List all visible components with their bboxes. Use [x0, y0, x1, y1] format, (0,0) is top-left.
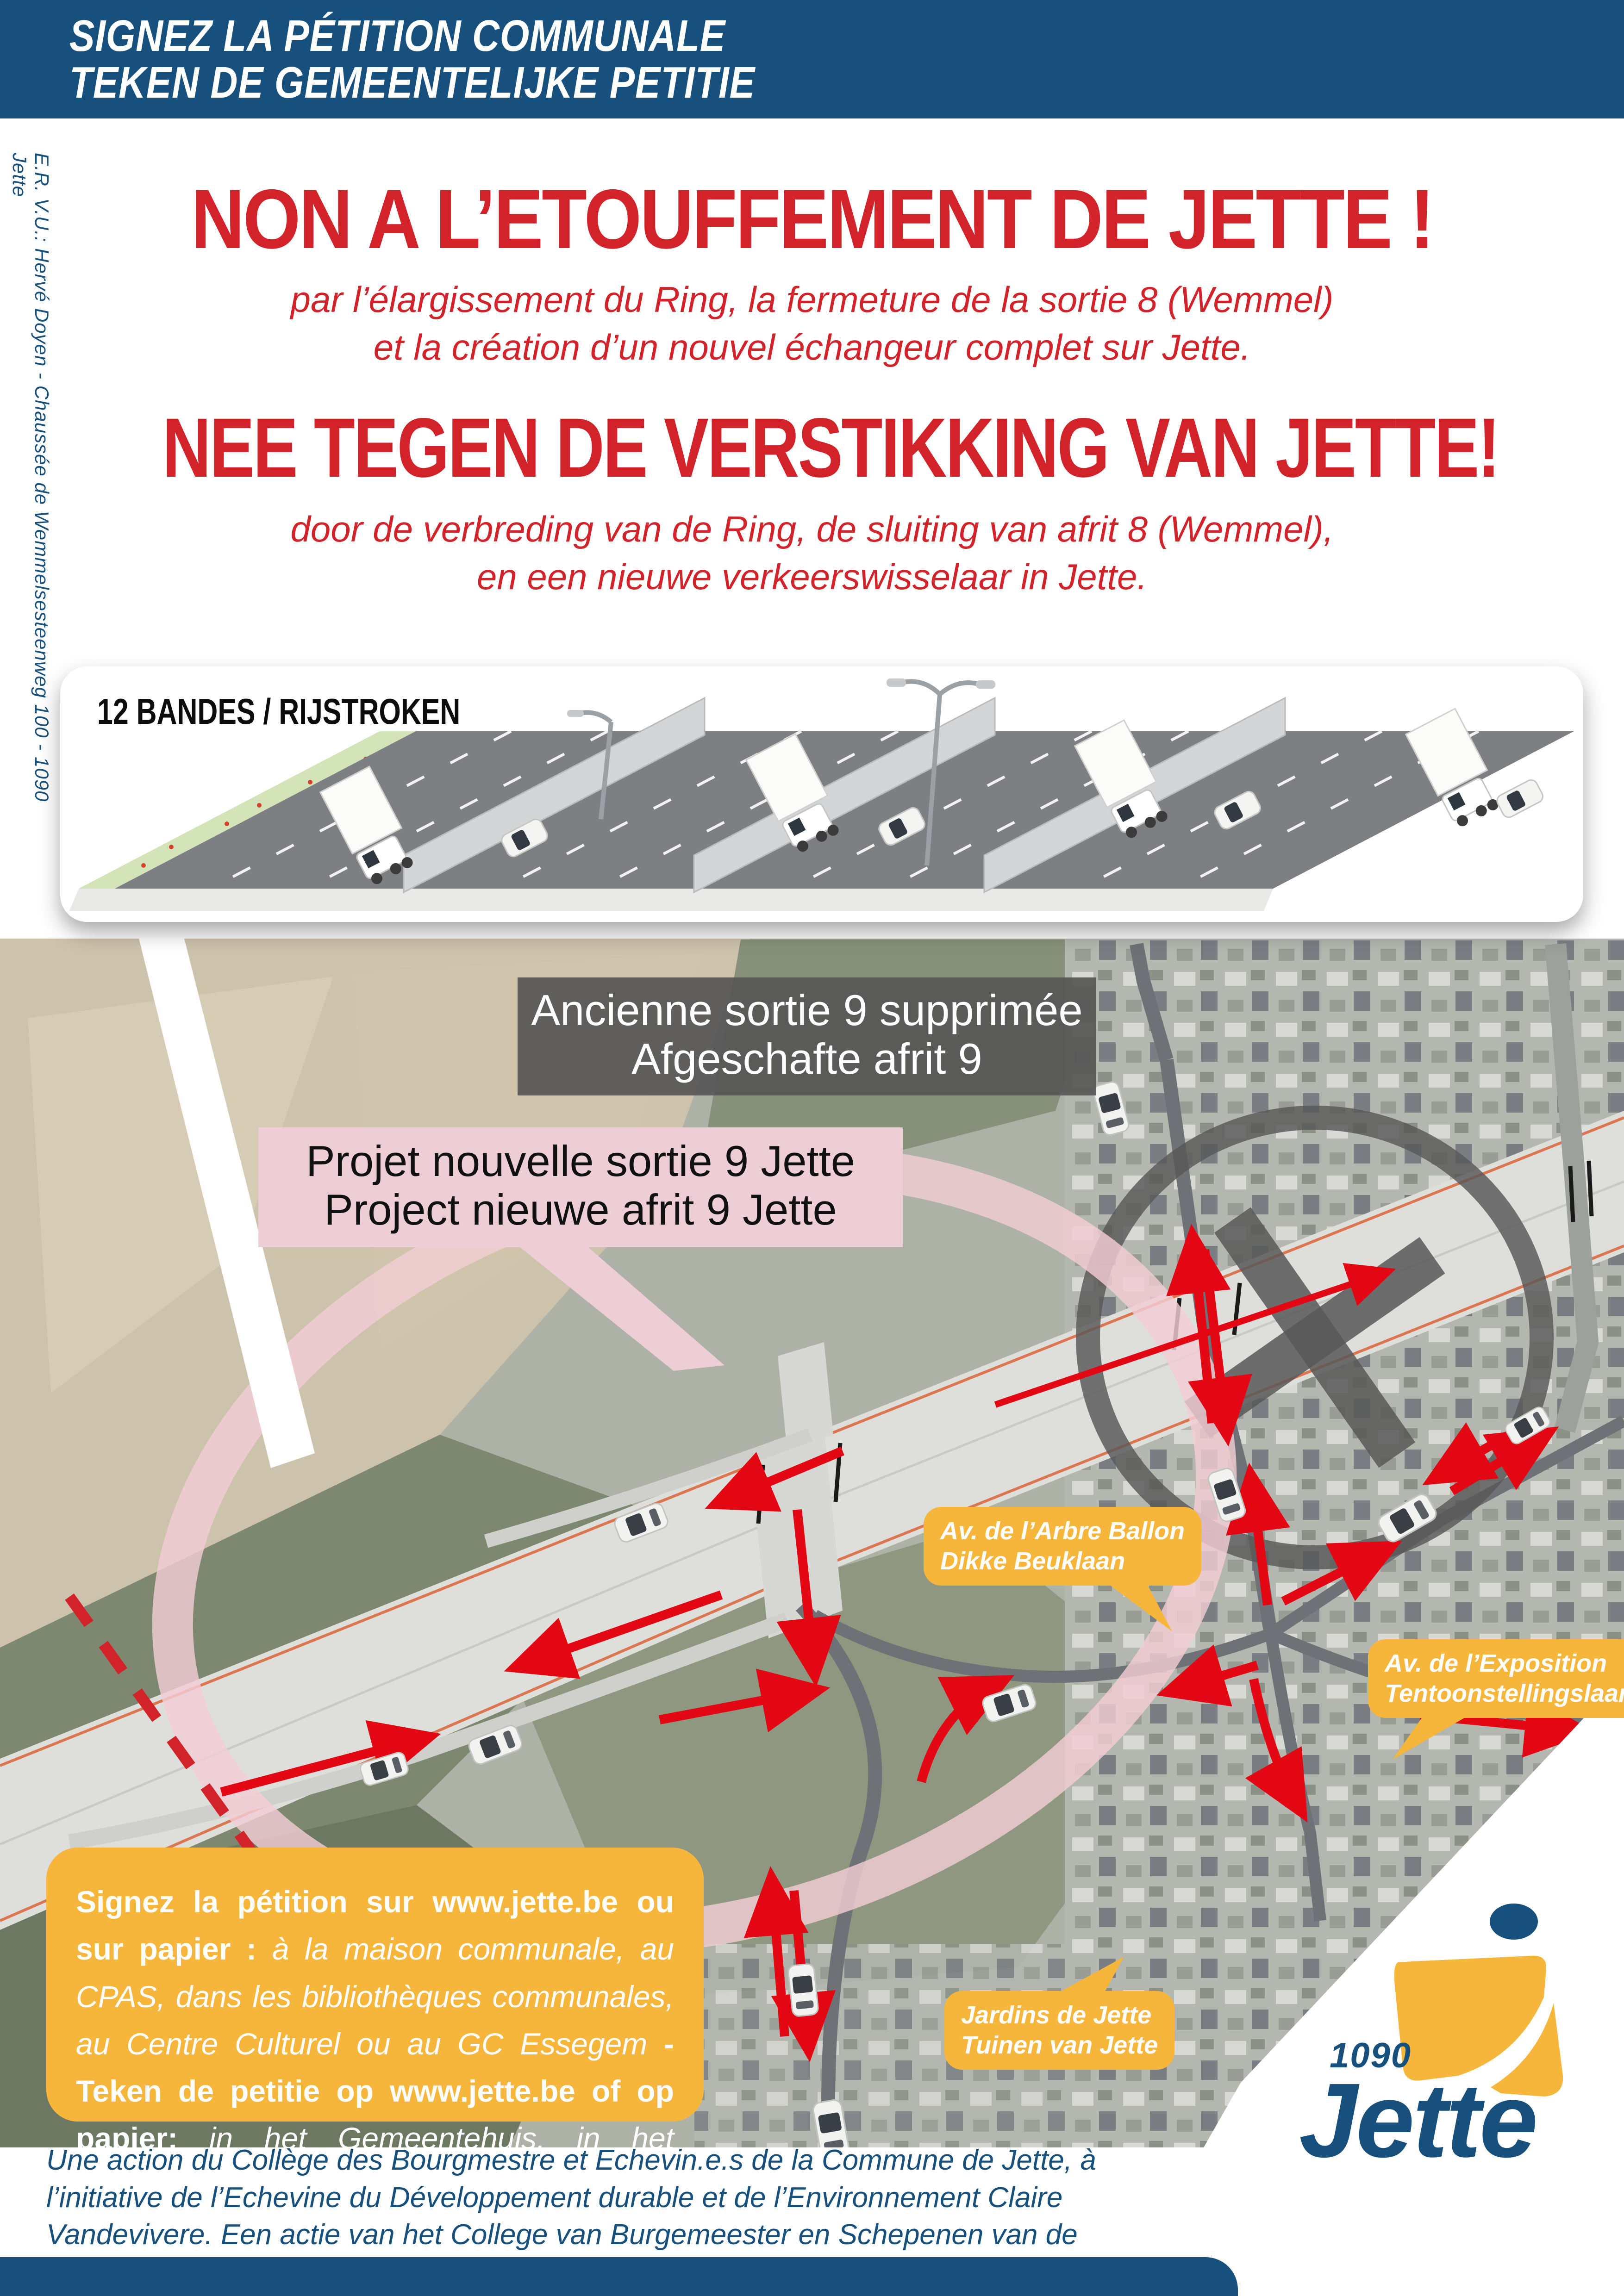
- label-jardins: Jardins de Jette Tuinen van Jette: [944, 1991, 1174, 2070]
- lanes-title: 12 BANDES / RIJSTROKEN: [97, 691, 460, 733]
- lanes-illustration-box: 12 BANDES / RIJSTROKEN: [60, 666, 1583, 922]
- publisher-credit: E.R. V.U.: Hervé Doyen - Chaussée de Wem…: [8, 153, 53, 847]
- subtitle-nl: door de verbreding van de Ring, de sluit…: [0, 505, 1624, 601]
- headline-fr: NON A L’ETOUFFEMENT DE JETTE !: [97, 170, 1526, 268]
- banner-title: SIGNEZ LA PÉTITION COMMUNALE TEKEN DE GE…: [69, 13, 755, 106]
- petition-box: Signez la pétition sur www.jette.be ou s…: [46, 1848, 704, 2122]
- label-old-exit: Ancienne sortie 9 supprimée Afgeschafte …: [518, 977, 1096, 1095]
- petition-poster: SIGNEZ LA PÉTITION COMMUNALE TEKEN DE GE…: [0, 0, 1624, 2296]
- headline-nl: NEE TEGEN DE VERSTIKKING VAN JETTE!: [162, 399, 1462, 496]
- logo-name: Jette: [1299, 2060, 1536, 2181]
- subtitle-fr: par l’élargissement du Ring, la fermetur…: [0, 276, 1624, 371]
- footer-bar: [0, 2257, 1238, 2296]
- label-arbre-ballon: Av. de l’Arbre Ballon Dikke Beuklaan: [924, 1507, 1201, 1586]
- label-new-exit: Projet nouvelle sortie 9 Jette Project n…: [258, 1127, 903, 1247]
- label-exposition: Av. de l’Exposition Tentoonstellingslaan: [1368, 1639, 1624, 1718]
- header-banner: SIGNEZ LA PÉTITION COMMUNALE TEKEN DE GE…: [0, 0, 1624, 118]
